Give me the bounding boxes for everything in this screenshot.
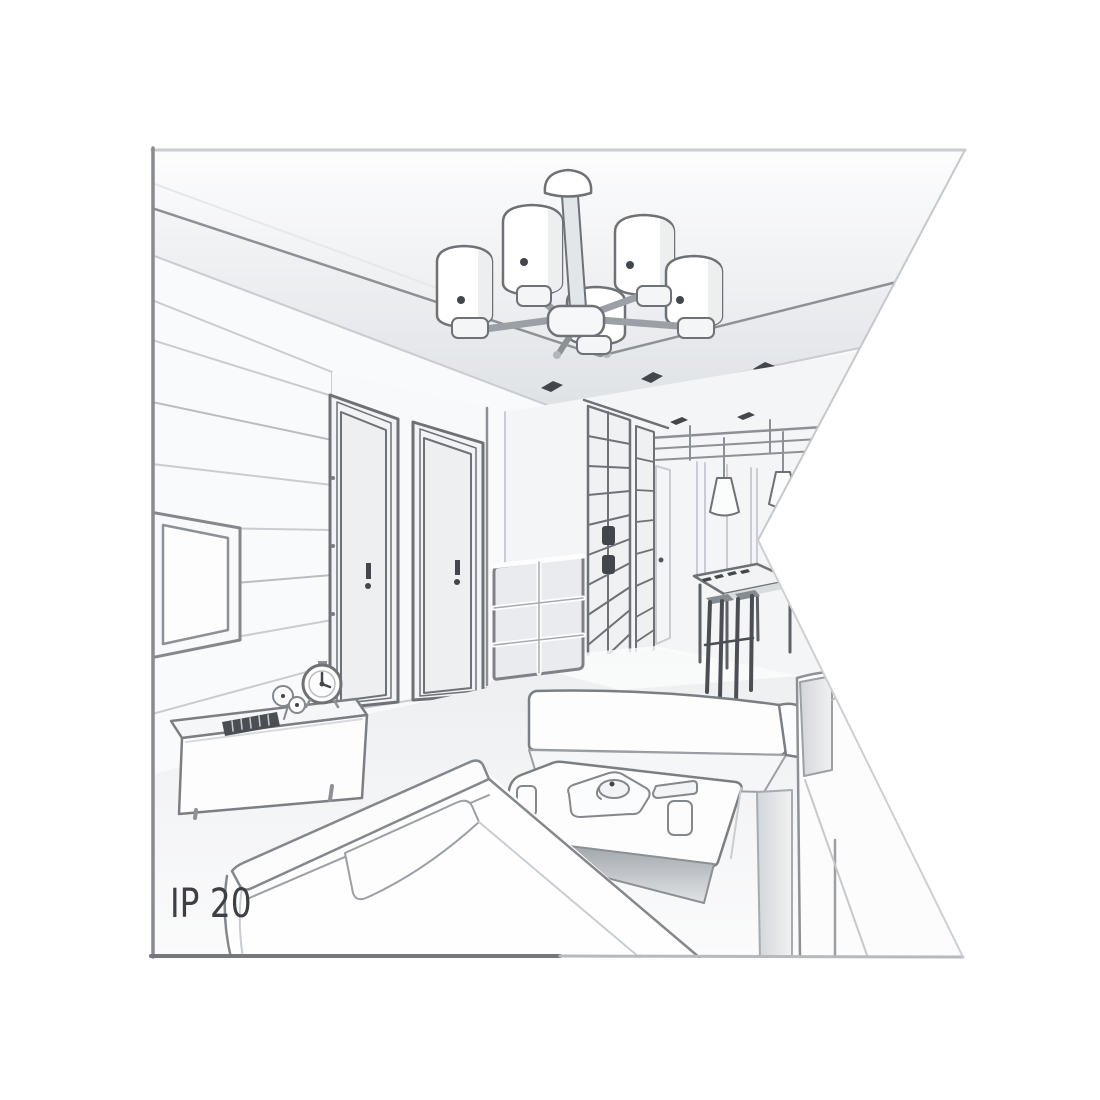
wardrobe-handle (602, 526, 615, 545)
interior-door-left (330, 395, 398, 709)
cup (668, 801, 692, 835)
wall-mounted-tv (150, 512, 240, 658)
chandelier-hub (548, 306, 604, 336)
product-context-illustration: IP 20 (0, 0, 1100, 1100)
armchair (797, 672, 966, 958)
sofa-side-panel (757, 790, 792, 958)
chandelier-shade (437, 246, 492, 327)
interior-door-right (413, 422, 483, 700)
cabinet-leg (195, 810, 196, 818)
wardrobe-handle (602, 555, 615, 574)
cabinet-leg (330, 786, 332, 800)
drawer-chest (494, 556, 583, 679)
door-handle (455, 560, 460, 575)
door-knob (659, 558, 664, 563)
chandelier-shade (503, 205, 562, 295)
arm-end-cap (553, 351, 561, 359)
ip-rating-label: IP 20 (170, 880, 252, 927)
room-sketch-svg: IP 20 (0, 0, 1100, 1100)
door-handle (366, 563, 371, 579)
ceiling-canopy (545, 170, 591, 197)
